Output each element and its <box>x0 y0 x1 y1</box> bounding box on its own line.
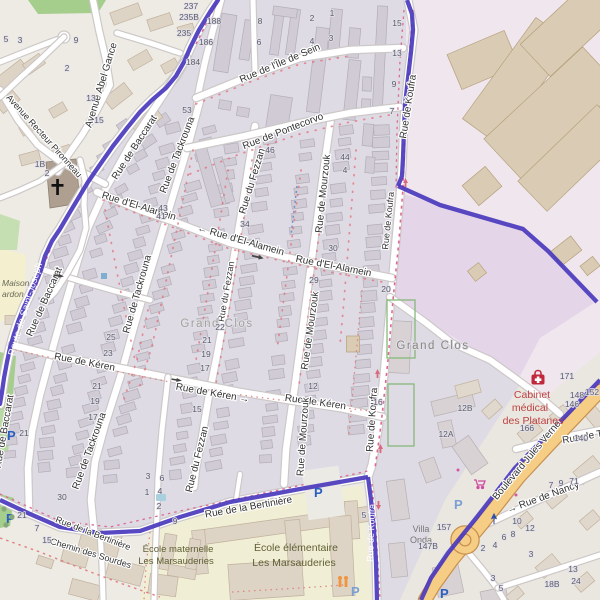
svg-text:P: P <box>440 586 449 600</box>
svg-text:6: 6 <box>257 37 262 47</box>
svg-text:186: 186 <box>199 37 213 47</box>
svg-text:18B: 18B <box>544 579 559 589</box>
svg-text:9: 9 <box>173 516 178 526</box>
svg-text:29: 29 <box>309 275 319 285</box>
svg-text:5: 5 <box>499 583 504 593</box>
svg-text:34: 34 <box>240 219 250 229</box>
svg-text:30: 30 <box>328 243 338 253</box>
svg-text:19: 19 <box>201 349 211 359</box>
svg-text:6: 6 <box>160 473 165 483</box>
svg-text:7: 7 <box>549 480 554 490</box>
svg-text:157: 157 <box>437 522 451 532</box>
svg-text:3: 3 <box>529 549 534 559</box>
svg-text:46: 46 <box>265 145 275 155</box>
svg-text:13: 13 <box>568 564 578 574</box>
svg-text:22: 22 <box>215 322 225 332</box>
svg-text:21: 21 <box>92 381 102 391</box>
svg-text:20: 20 <box>381 284 391 294</box>
svg-text:188: 188 <box>207 16 221 26</box>
svg-text:12B: 12B <box>457 403 472 413</box>
svg-text:19: 19 <box>90 396 100 406</box>
svg-text:2: 2 <box>157 501 162 511</box>
svg-text:4: 4 <box>493 540 498 550</box>
svg-text:École élémentaire: École élémentaire <box>254 541 338 554</box>
svg-text:École maternelle: École maternelle <box>143 544 214 555</box>
svg-text:P: P <box>454 497 463 512</box>
svg-text:Villa: Villa <box>413 524 430 534</box>
svg-text:16: 16 <box>373 397 383 407</box>
svg-text:23: 23 <box>103 348 113 358</box>
svg-text:12: 12 <box>308 381 318 391</box>
svg-text:Les Marsauderies: Les Marsauderies <box>138 556 214 567</box>
svg-text:41: 41 <box>156 211 166 221</box>
svg-text:1: 1 <box>330 8 335 18</box>
svg-text:Grand Clos: Grand Clos <box>396 340 469 352</box>
svg-text:9: 9 <box>74 35 79 45</box>
svg-text:15: 15 <box>42 535 52 545</box>
svg-text:6: 6 <box>502 532 507 542</box>
svg-text:184: 184 <box>186 57 200 67</box>
svg-text:17: 17 <box>88 412 98 422</box>
svg-text:2: 2 <box>45 168 50 178</box>
svg-text:5: 5 <box>4 34 9 44</box>
svg-text:P: P <box>351 584 360 599</box>
svg-text:147B: 147B <box>418 541 438 551</box>
svg-text:P: P <box>7 428 16 443</box>
svg-text:8: 8 <box>511 529 516 539</box>
svg-text:8: 8 <box>258 16 263 26</box>
svg-text:15: 15 <box>192 404 202 414</box>
svg-text:152: 152 <box>585 387 599 397</box>
svg-text:53: 53 <box>182 105 192 115</box>
svg-text:2: 2 <box>310 13 315 23</box>
svg-text:Maison: Maison <box>2 278 30 288</box>
svg-text:Rue de Koufra: Rue de Koufra <box>365 504 377 562</box>
svg-text:3: 3 <box>491 573 496 583</box>
svg-text:235B: 235B <box>179 12 199 22</box>
svg-text:7: 7 <box>35 523 40 533</box>
svg-text:10: 10 <box>512 516 522 526</box>
svg-text:15: 15 <box>94 115 104 125</box>
svg-text:44: 44 <box>340 152 350 162</box>
svg-text:17: 17 <box>200 363 210 373</box>
svg-text:3: 3 <box>329 33 334 43</box>
svg-text:146: 146 <box>565 399 579 409</box>
svg-text:Les Marsauderies: Les Marsauderies <box>252 557 335 569</box>
svg-text:235: 235 <box>177 28 191 38</box>
svg-text:12A: 12A <box>438 429 453 439</box>
svg-text:7: 7 <box>390 106 395 116</box>
svg-text:25: 25 <box>106 332 116 342</box>
svg-text:3: 3 <box>146 471 151 481</box>
svg-text:71: 71 <box>569 476 579 486</box>
svg-text:P: P <box>314 485 323 500</box>
svg-text:3: 3 <box>18 35 23 45</box>
svg-text:21: 21 <box>19 428 29 438</box>
svg-text:2: 2 <box>65 63 70 73</box>
svg-text:21: 21 <box>202 335 212 345</box>
svg-text:171: 171 <box>560 371 574 381</box>
svg-text:1: 1 <box>145 487 150 497</box>
svg-text:4: 4 <box>343 165 348 175</box>
svg-text:13: 13 <box>392 48 402 58</box>
svg-text:13: 13 <box>86 93 96 103</box>
svg-text:140: 140 <box>574 433 588 443</box>
svg-text:médical: médical <box>512 402 548 414</box>
svg-text:166: 166 <box>520 423 534 433</box>
svg-text:15: 15 <box>392 18 402 28</box>
svg-text:30: 30 <box>57 492 67 502</box>
svg-text:2: 2 <box>481 543 486 553</box>
svg-text:ardon: ardon <box>2 289 24 299</box>
svg-text:4: 4 <box>310 36 315 46</box>
svg-text:5: 5 <box>362 510 367 520</box>
svg-text:24: 24 <box>571 576 581 586</box>
svg-text:12: 12 <box>525 523 535 533</box>
svg-text:237: 237 <box>184 1 198 11</box>
svg-text:9: 9 <box>559 478 564 488</box>
svg-text:21: 21 <box>17 510 27 520</box>
svg-text:9: 9 <box>392 79 397 89</box>
svg-text:Cabinet: Cabinet <box>514 389 550 401</box>
